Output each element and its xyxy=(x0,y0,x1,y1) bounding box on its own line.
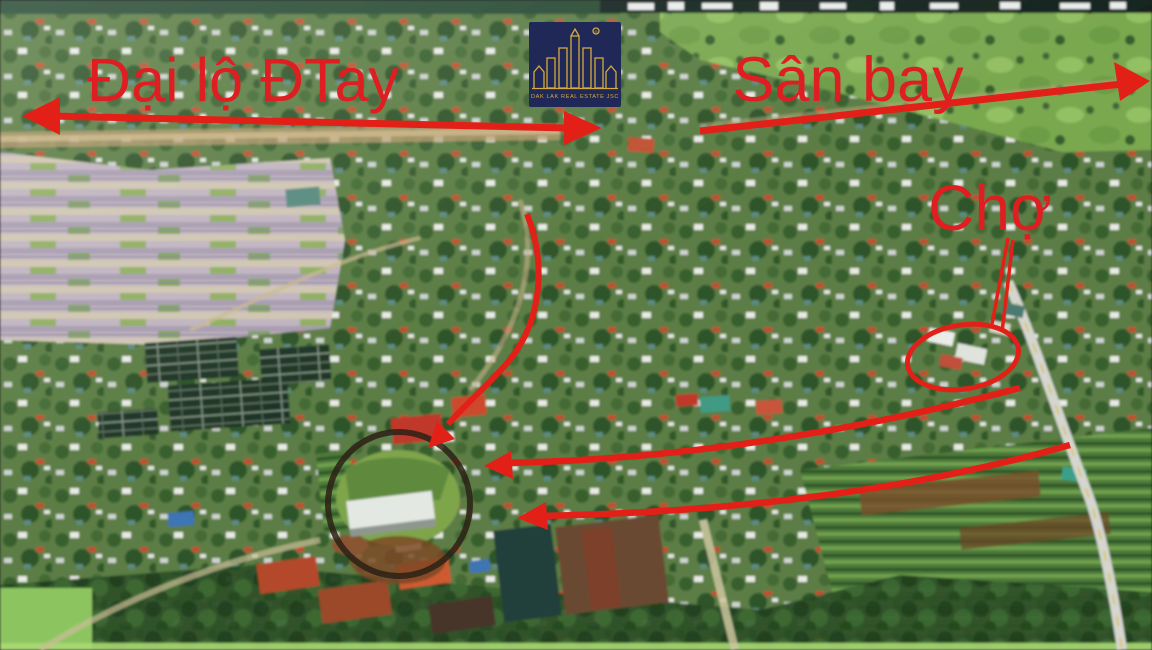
boulevard-label: Đại lộ ĐTay xyxy=(87,46,399,114)
logo-company-name: DAK LAK REAL ESTATE JSC xyxy=(531,94,619,100)
airport-label: Sân bay xyxy=(732,45,964,115)
logo-registered-mark: ® xyxy=(595,29,598,34)
company-logo: ® DAK LAK REAL ESTATE JSC xyxy=(529,22,621,107)
market-label: Chợ xyxy=(928,172,1052,244)
aerial-map-image: Đại lộ ĐTay Sân bay Chợ ® DAK LAK REAL E… xyxy=(0,0,1152,650)
